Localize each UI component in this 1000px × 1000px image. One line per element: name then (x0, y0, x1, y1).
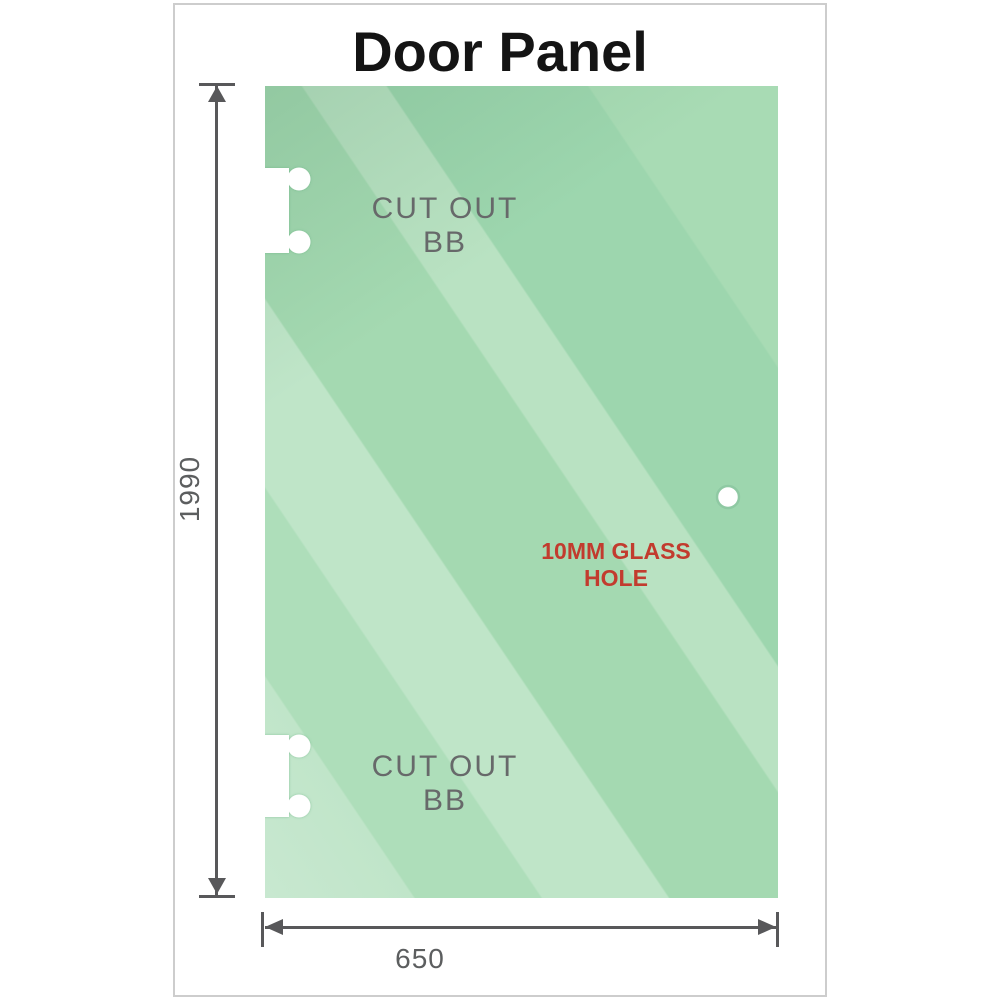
height-dimension-value: 1990 (174, 439, 206, 539)
width-dimension-line (265, 926, 776, 929)
page-title: Door Panel (175, 19, 825, 84)
arrow-right-icon (758, 919, 776, 935)
width-dimension-value: 650 (360, 943, 480, 975)
glass-hole-label: 10MM GLASS HOLE (511, 538, 721, 592)
diagram-frame: Door Panel CUT OUT BB CU (173, 3, 827, 997)
arrow-down-icon (208, 878, 226, 894)
width-dimension-left-tick (261, 912, 264, 947)
glass-hole-icon (717, 486, 739, 508)
cutout-bb-top-label: CUT OUT BB (345, 192, 545, 260)
height-dimension-line (215, 86, 218, 896)
width-dimension-right-tick (776, 912, 779, 947)
arrow-up-icon (208, 86, 226, 102)
glass-door-panel: CUT OUT BB CUT OUT BB 10MM GLASS HOLE (265, 86, 778, 898)
cutout-bb-bottom-icon (265, 735, 311, 818)
arrow-left-icon (265, 919, 283, 935)
cutout-bb-top-icon (265, 168, 311, 254)
cutout-bb-bottom-label: CUT OUT BB (345, 750, 545, 818)
